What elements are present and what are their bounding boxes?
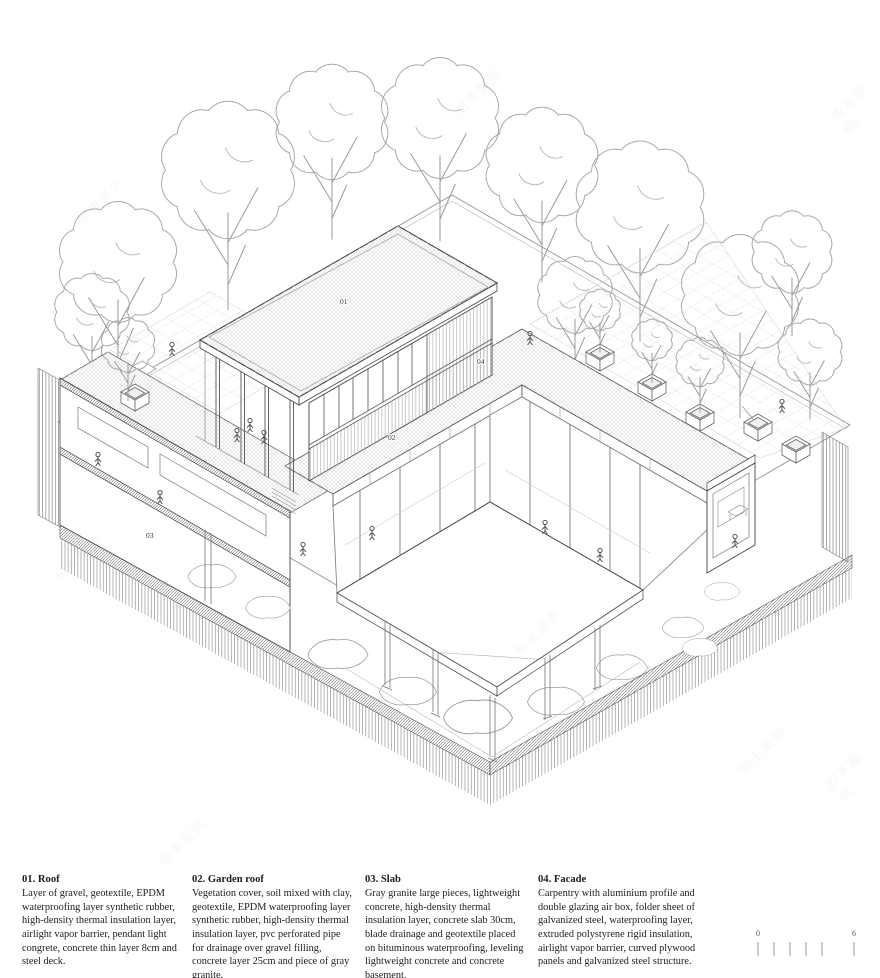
- label-roof: 01: [340, 297, 348, 306]
- legend-garden-roof-body: Vegetation cover, soil mixed with clay, …: [192, 887, 352, 978]
- label-garden-roof: 02: [388, 433, 396, 442]
- scale-start-label: 0: [756, 929, 760, 938]
- axonometric-drawing: 01 02 03 04: [0, 0, 880, 872]
- scale-bar: 0 6: [748, 926, 868, 962]
- legend-facade: 04. Facade Carpentry with aluminium prof…: [538, 874, 698, 969]
- legend-facade-title: 04. Facade: [538, 874, 698, 885]
- legend-facade-body: Carpentry with aluminium profile and dou…: [538, 887, 698, 969]
- label-slab: 03: [146, 531, 154, 540]
- legend-roof-body: Layer of gravel, geotextile, EPDM waterp…: [22, 887, 182, 969]
- legend-slab: 03. Slab Gray granite large pieces, ligh…: [365, 874, 525, 978]
- legend-slab-body: Gray granite large pieces, lightweight c…: [365, 887, 525, 978]
- legend-roof-title: 01. Roof: [22, 874, 182, 885]
- legend-garden-roof-title: 02. Garden roof: [192, 874, 352, 885]
- label-facade: 04: [477, 357, 485, 366]
- scale-end-label: 6: [852, 929, 856, 938]
- architectural-sheet: 01 02 03 04 01. Roof Layer of gravel, ge…: [0, 0, 880, 978]
- legend-slab-title: 03. Slab: [365, 874, 525, 885]
- scale-ticks: [758, 942, 854, 956]
- legend-roof: 01. Roof Layer of gravel, geotextile, EP…: [22, 874, 182, 969]
- legend-garden-roof: 02. Garden roof Vegetation cover, soil m…: [192, 874, 352, 978]
